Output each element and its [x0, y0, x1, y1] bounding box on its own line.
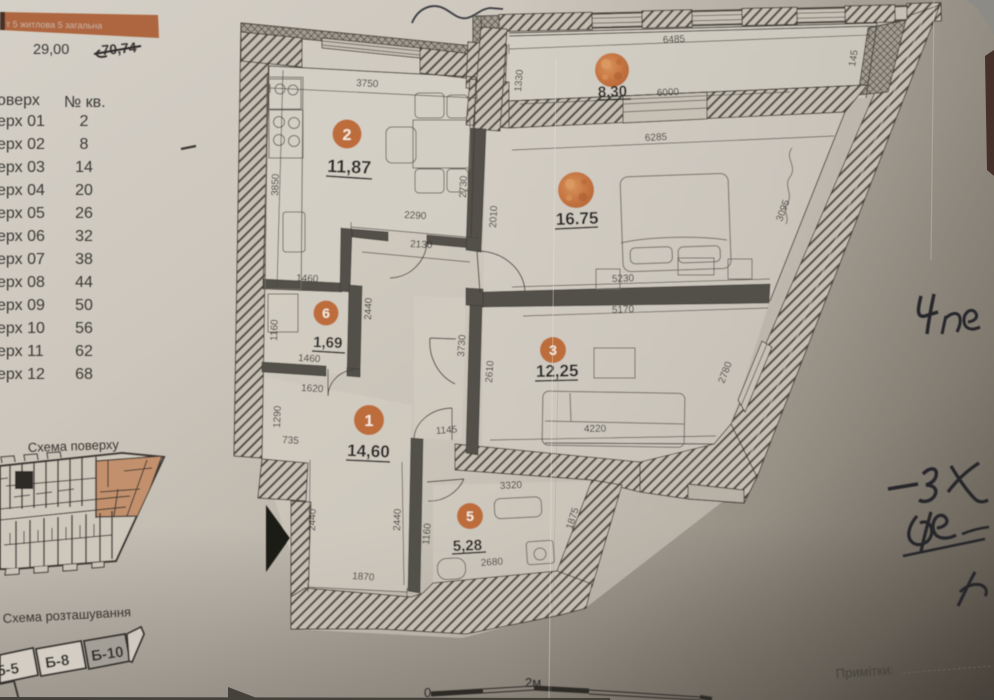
svg-text:ерх 08: ерх 08: [0, 274, 45, 291]
svg-text:ерх 09: ерх 09: [0, 297, 45, 314]
svg-text:2440: 2440: [363, 297, 375, 320]
svg-text:5: 5: [466, 508, 474, 524]
svg-text:ерх 02: ерх 02: [0, 136, 45, 153]
svg-text:1460: 1460: [296, 273, 319, 285]
svg-text:11,87: 11,87: [327, 156, 372, 178]
svg-text:16.75: 16.75: [555, 209, 598, 229]
svg-text:3850: 3850: [270, 173, 282, 196]
svg-text:№ кв.: № кв.: [64, 94, 106, 111]
svg-text:1: 1: [365, 413, 374, 430]
svg-text:2610: 2610: [484, 360, 497, 383]
svg-text:ерх 10: ерх 10: [0, 320, 45, 337]
svg-text:3320: 3320: [500, 480, 523, 492]
svg-text:1460: 1460: [298, 353, 321, 365]
svg-text:6485: 6485: [663, 34, 686, 46]
svg-text:2440: 2440: [392, 508, 404, 531]
svg-text:2290: 2290: [404, 210, 427, 222]
svg-text:т 5 житлова 5 загальна: т 5 житлова 5 загальна: [6, 19, 102, 31]
svg-text:ерх 07: ерх 07: [0, 251, 45, 268]
svg-text:8: 8: [80, 136, 89, 153]
svg-text:2680: 2680: [480, 556, 503, 569]
svg-text:6285: 6285: [645, 132, 668, 144]
svg-text:2010: 2010: [488, 205, 500, 228]
svg-text:Схема поверху: Схема поверху: [28, 437, 120, 455]
svg-text:1290: 1290: [272, 405, 284, 428]
svg-text:1160: 1160: [421, 522, 434, 545]
svg-text:ерх 01: ерх 01: [0, 113, 45, 130]
svg-text:2730: 2730: [458, 175, 470, 198]
svg-text:3730: 3730: [456, 334, 469, 357]
svg-text:38: 38: [75, 251, 93, 268]
svg-text:5230: 5230: [612, 273, 635, 285]
svg-text:6000: 6000: [657, 87, 680, 99]
svg-text:5-5: 5-5: [0, 660, 20, 680]
svg-text:2: 2: [343, 127, 352, 144]
svg-text:32: 32: [75, 228, 93, 245]
svg-text:2130: 2130: [410, 239, 433, 251]
svg-text:735: 735: [282, 435, 300, 447]
svg-text:2440: 2440: [307, 508, 319, 531]
svg-text:44: 44: [75, 274, 93, 291]
svg-text:68: 68: [75, 366, 93, 383]
svg-text:оверх: оверх: [0, 92, 40, 109]
svg-text:1145: 1145: [435, 424, 458, 437]
svg-text:ерх 06: ерх 06: [0, 228, 45, 245]
svg-text:1870: 1870: [352, 571, 375, 584]
svg-text:1160: 1160: [269, 319, 281, 341]
svg-text:5170: 5170: [612, 304, 635, 316]
svg-text:26: 26: [75, 205, 93, 222]
svg-text:ерх 05: ерх 05: [0, 205, 45, 222]
svg-text:2м: 2м: [525, 675, 541, 690]
svg-text:ерх 04: ерх 04: [0, 182, 45, 199]
svg-text:20: 20: [75, 182, 93, 199]
svg-text:Б-8: Б-8: [44, 652, 70, 672]
svg-text:3750: 3750: [356, 78, 379, 90]
svg-text:ерх 11: ерх 11: [0, 343, 44, 360]
svg-text:14: 14: [75, 159, 93, 176]
svg-text:29,00: 29,00: [33, 42, 69, 58]
svg-text:1,69: 1,69: [313, 334, 343, 352]
svg-text:50: 50: [75, 297, 93, 314]
svg-text:12,25: 12,25: [536, 361, 579, 381]
svg-text:1330: 1330: [513, 69, 526, 93]
svg-text:62: 62: [75, 343, 93, 360]
svg-text:ерх 12: ерх 12: [0, 366, 45, 383]
svg-text:2: 2: [80, 113, 89, 130]
svg-text:8,30: 8,30: [598, 83, 628, 101]
svg-text:4220: 4220: [584, 424, 607, 435]
svg-text:1620: 1620: [301, 383, 324, 395]
svg-text:56: 56: [75, 320, 93, 337]
svg-text:6: 6: [322, 305, 330, 321]
svg-text:14,60: 14,60: [347, 441, 390, 461]
svg-text:ерх 03: ерх 03: [0, 159, 45, 176]
